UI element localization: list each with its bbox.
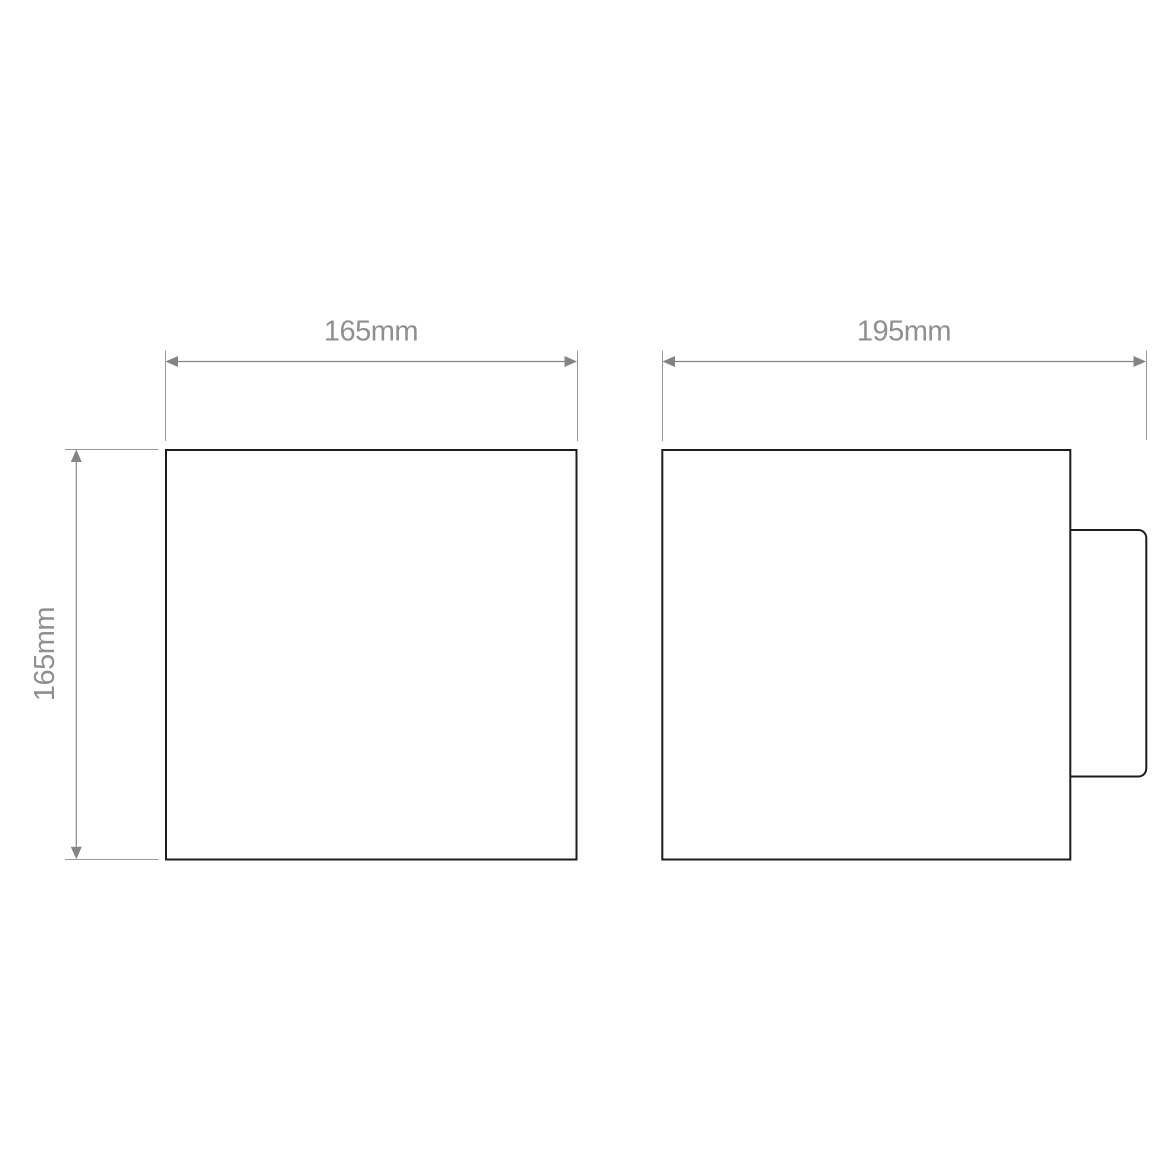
svg-text:165mm: 165mm (324, 316, 418, 348)
svg-text:195mm: 195mm (857, 316, 951, 348)
svg-text:165mm: 165mm (29, 607, 61, 701)
